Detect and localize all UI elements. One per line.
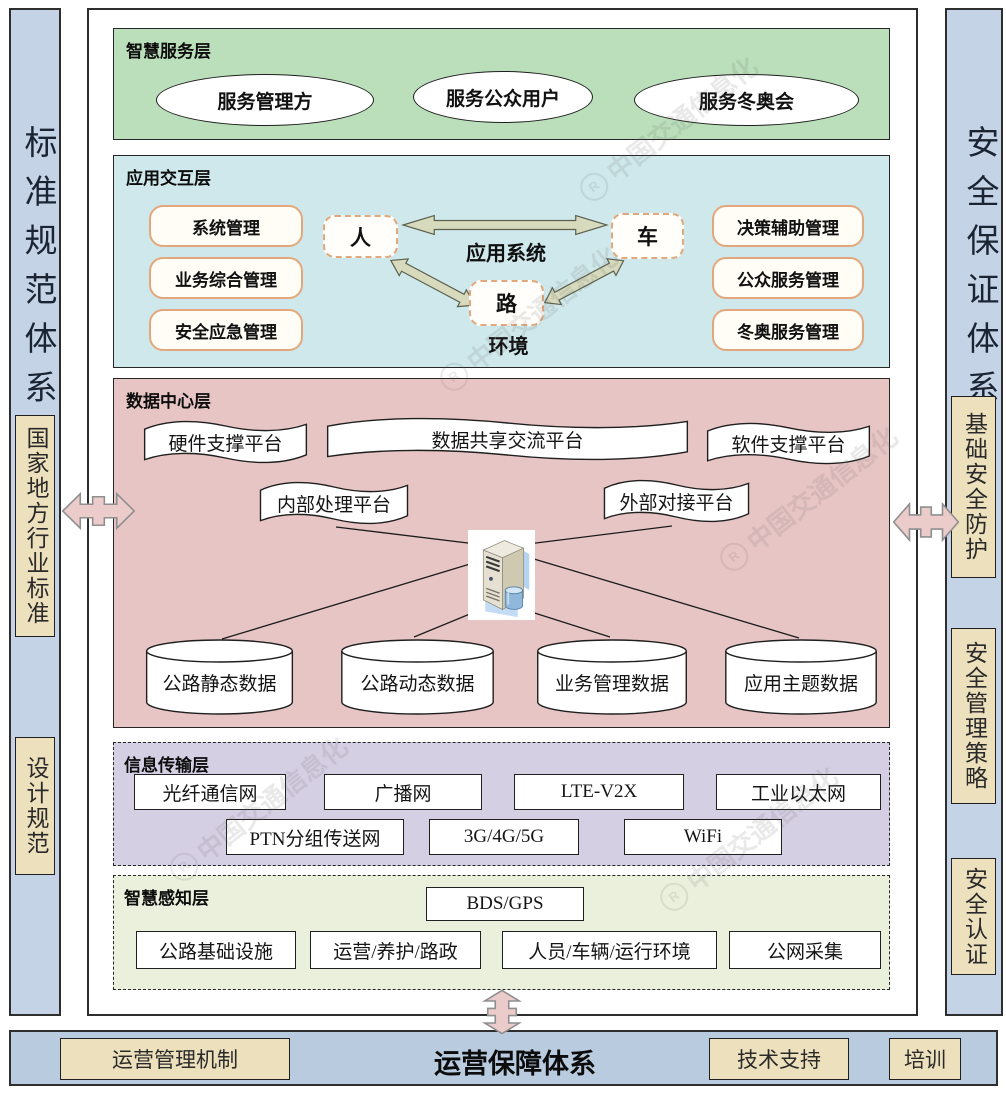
sidebar-item-design-spec: 设计规范: [15, 737, 55, 875]
app-box-decision-support: 决策辅助管理: [712, 205, 864, 247]
operation-guarantee-bar: 运营管理机制 运营保障体系 技术支持 培训: [9, 1030, 998, 1086]
layer-label: 应用交互层: [126, 164, 211, 189]
service-ellipse-public: 服务公众用户: [413, 71, 593, 123]
data-cylinder-dynamic-road-data: 公路动态数据: [337, 638, 498, 716]
data-cylinder-static-road-data: 公路静态数据: [142, 638, 297, 716]
network-box-wifi: WiFi: [624, 819, 782, 855]
node-road: 路: [469, 280, 544, 326]
app-box-emergency-management: 安全应急管理: [149, 309, 303, 351]
person-vehicle-double-arrow-icon: [401, 214, 609, 236]
network-box-fiber: 光纤通信网: [134, 774, 286, 810]
banner-external-interface-platform: 外部对接平台: [603, 477, 750, 525]
perception-box-road-infrastructure: 公路基础设施: [136, 931, 296, 969]
information-transmission-layer: 信息传输层 光纤通信网 广播网 LTE-V2X 工业以太网 PTN分组传送网 3…: [113, 742, 890, 866]
smart-highway-architecture-diagram: R中国交通信息化 R中国交通信息化 R中国交通信息化 R中国交通信息化 R中国交…: [0, 0, 1006, 1094]
app-box-business-management: 业务综合管理: [149, 257, 303, 299]
application-system-label: 应用系统: [451, 238, 561, 264]
perception-box-operation-maintenance: 运营/养护/路政: [310, 931, 481, 969]
network-box-lte-v2x: LTE-V2X: [514, 774, 684, 810]
layer-label: 智慧服务层: [126, 37, 211, 62]
banner-software-platform: 软件支撑平台: [706, 420, 871, 467]
left-link-double-arrow-icon: [62, 490, 135, 532]
smart-service-layer: 智慧服务层 服务管理方 服务公众用户 服务冬奥会: [113, 28, 890, 140]
application-interaction-layer: 应用交互层 系统管理 业务综合管理 安全应急管理 决策辅助管理 公众服务管理 冬…: [113, 155, 890, 368]
sidebar-item-security-policy: 安全管理策略: [951, 628, 996, 804]
banner-hardware-platform: 硬件支撑平台: [143, 418, 308, 466]
data-center-layer: 数据中心层 硬件支撑平台 数据共享交流平台 软件支撑平台: [113, 378, 890, 728]
app-box-olympics-service: 冬奥服务管理: [712, 309, 864, 351]
bottom-link-double-arrow-icon: [481, 990, 523, 1034]
perception-box-bds-gps: BDS/GPS: [426, 887, 584, 921]
node-person: 人: [323, 215, 398, 258]
data-cylinder-business-data: 业务管理数据: [533, 638, 691, 716]
node-vehicle: 车: [611, 213, 684, 259]
banner-internal-processing-platform: 内部处理平台: [259, 479, 409, 527]
banner-data-sharing-platform: 数据共享交流平台: [324, 415, 691, 463]
layer-label: 信息传输层: [124, 751, 209, 776]
app-box-public-service: 公众服务管理: [712, 257, 864, 299]
server-icon: [468, 530, 535, 620]
service-ellipse-manager: 服务管理方: [156, 74, 374, 126]
sidebar-item-national-standards: 国家地方行业标准: [15, 415, 55, 637]
network-box-cellular: 3G/4G/5G: [429, 819, 579, 855]
standards-sidebar-title: 标准规范体系: [9, 72, 61, 472]
smart-perception-layer: 智慧感知层 BDS/GPS 公路基础设施 运营/养护/路政 人员/车辆/运行环境…: [113, 875, 890, 990]
perception-box-public-network-collection: 公网采集: [729, 931, 881, 969]
data-cylinder-theme-data: 应用主题数据: [721, 638, 881, 716]
operation-guarantee-title: 运营保障体系: [375, 1042, 655, 1081]
right-link-double-arrow-icon: [893, 500, 959, 544]
bottom-item-operation-mechanism: 运营管理机制: [60, 1038, 290, 1080]
sidebar-item-basic-security: 基础安全防护: [951, 396, 996, 578]
environment-label: 环境: [471, 332, 546, 356]
network-box-broadcast: 广播网: [324, 774, 482, 810]
app-box-system-management: 系统管理: [149, 205, 303, 247]
sidebar-item-security-cert: 安全认证: [951, 858, 996, 975]
bottom-item-tech-support: 技术支持: [709, 1038, 849, 1080]
bottom-item-training: 培训: [889, 1038, 961, 1080]
network-box-industrial-ethernet: 工业以太网: [716, 774, 881, 810]
layer-label: 智慧感知层: [124, 884, 209, 909]
service-ellipse-olympics: 服务冬奥会: [634, 74, 859, 126]
network-box-ptn: PTN分组传送网: [226, 819, 404, 855]
perception-box-personnel-vehicle-env: 人员/车辆/运行环境: [502, 931, 717, 969]
